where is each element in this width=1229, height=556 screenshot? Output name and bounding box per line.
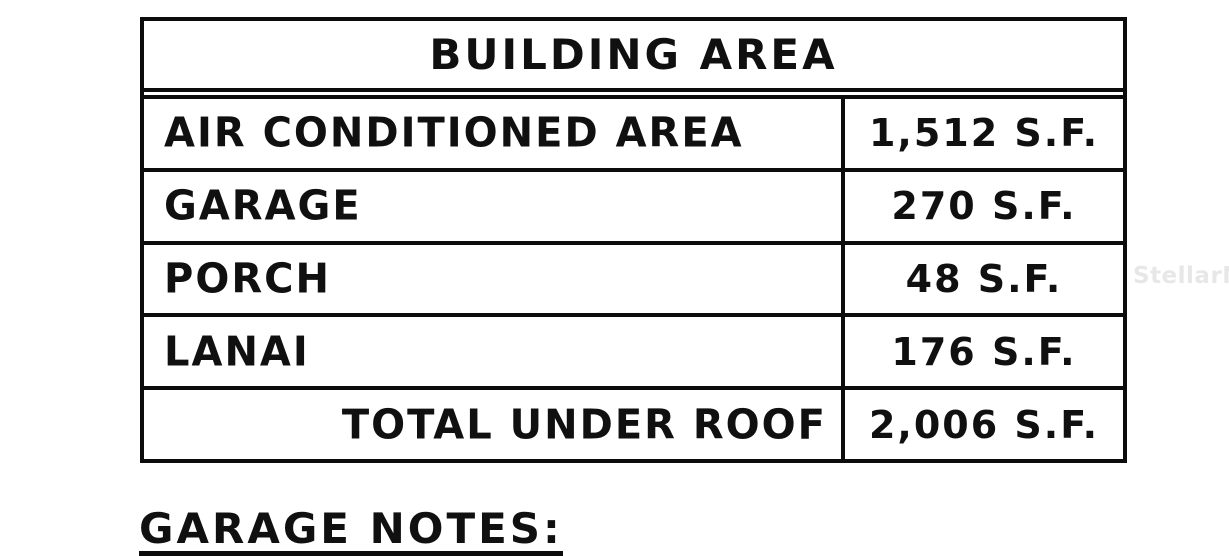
garage-notes-heading: GARAGE NOTES: (139, 508, 563, 556)
table-row-air-conditioned-area: AIR CONDITIONED AREA 1,512 S.F. (144, 99, 1123, 172)
row-value: 48 S.F. (906, 257, 1063, 301)
row-label: GARAGE (164, 183, 362, 230)
row-value: 176 S.F. (891, 330, 1076, 374)
stellar-mls-watermark: StellarMLS (1133, 263, 1229, 289)
row-label-cell: AIR CONDITIONED AREA (144, 99, 845, 168)
building-area-table: BUILDING AREA AIR CONDITIONED AREA 1,512… (140, 17, 1127, 463)
row-value-cell: 1,512 S.F. (845, 99, 1123, 168)
table-row-garage: GARAGE 270 S.F. (144, 172, 1123, 245)
total-label: TOTAL UNDER ROOF (342, 401, 827, 448)
table-row-porch: PORCH 48 S.F. (144, 245, 1123, 318)
table-title: BUILDING AREA (429, 30, 837, 79)
row-label-cell: LANAI (144, 317, 845, 386)
row-value: 270 S.F. (891, 184, 1076, 228)
total-value-cell: 2,006 S.F. (845, 390, 1123, 459)
row-label-cell: GARAGE (144, 172, 845, 241)
table-row-total-under-roof: TOTAL UNDER ROOF 2,006 S.F. (144, 390, 1123, 459)
row-label: LANAI (164, 328, 310, 375)
row-label: AIR CONDITIONED AREA (164, 110, 744, 157)
row-value-cell: 176 S.F. (845, 317, 1123, 386)
row-value-cell: 270 S.F. (845, 172, 1123, 241)
table-body: AIR CONDITIONED AREA 1,512 S.F. GARAGE 2… (144, 95, 1123, 459)
row-label-cell: PORCH (144, 245, 845, 314)
total-label-cell: TOTAL UNDER ROOF (144, 390, 845, 459)
row-label: PORCH (164, 256, 331, 303)
total-value: 2,006 S.F. (869, 403, 1099, 447)
row-value-cell: 48 S.F. (845, 245, 1123, 314)
table-row-lanai: LANAI 176 S.F. (144, 317, 1123, 390)
row-value: 1,512 S.F. (869, 111, 1099, 155)
table-header-row: BUILDING AREA (144, 21, 1123, 92)
